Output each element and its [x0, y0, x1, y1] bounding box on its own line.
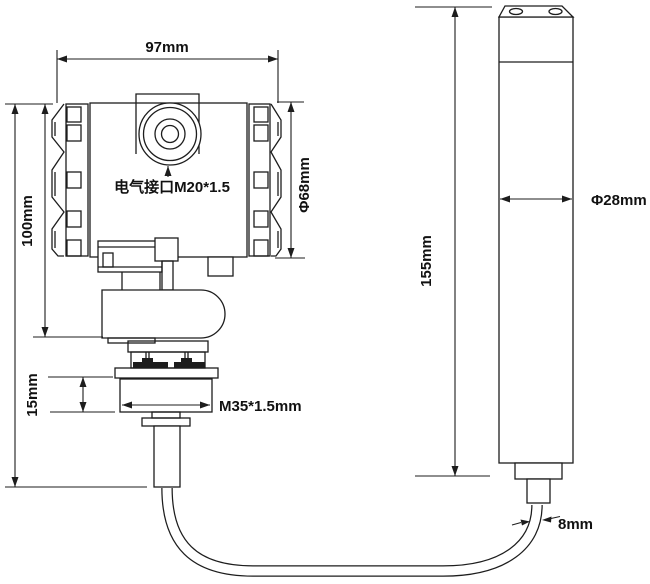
- process-connection: [98, 238, 233, 426]
- transmitter: [52, 94, 281, 426]
- probe: [499, 6, 573, 503]
- gasket-bar-right: [174, 362, 205, 368]
- thread-nut: [120, 379, 212, 412]
- dim-97mm-label: 97mm: [145, 39, 188, 56]
- electrical-port: [136, 94, 201, 165]
- right-cover-silhouette: [271, 104, 281, 256]
- side-step-block: [208, 257, 233, 276]
- dim-phi68-label: Φ68mm: [296, 157, 313, 213]
- dimension-drawing: 97mm 100mm 15mm Φ68mm 电气接口M20*1.5: [0, 0, 650, 584]
- port-outer-ring: [139, 103, 201, 165]
- cable-core: [167, 488, 537, 571]
- probe-cable-fitting: [527, 479, 550, 503]
- cap-post: [162, 261, 173, 290]
- mount-plate: [115, 368, 218, 378]
- left-cover-silhouette: [52, 104, 64, 256]
- probe-body: [499, 17, 573, 463]
- dim-phi28-label: Φ28mm: [591, 192, 647, 209]
- dim-155mm-label: 155mm: [418, 235, 435, 287]
- connection-cable: [167, 488, 537, 571]
- bolt-head-right: [181, 358, 192, 362]
- dim-100mm-label: 100mm: [19, 195, 36, 247]
- dimension-cable-8: 8mm: [512, 516, 593, 533]
- dim-15mm-label: 15mm: [24, 373, 41, 416]
- dimension-probe-length-155: 155mm: [415, 7, 492, 476]
- thread-m35-label: M35*1.5mm: [219, 398, 302, 415]
- right-cover-fins: [254, 107, 268, 256]
- cable-outline: [167, 488, 537, 571]
- cap-block: [155, 238, 178, 261]
- probe-bottom-collar: [515, 463, 562, 479]
- electrical-port-label: 电气接口M20*1.5: [114, 178, 230, 196]
- dim-8-arrow-right: [542, 517, 552, 523]
- process-stem: [154, 426, 180, 487]
- dim-8mm-label: 8mm: [558, 516, 593, 533]
- dim-15-extension-lines: [48, 377, 115, 412]
- gasket-bar-left: [133, 362, 168, 368]
- bolt-stems: [146, 352, 188, 358]
- left-cover-plate: [66, 104, 88, 256]
- neck-lines: [122, 272, 160, 290]
- stem-collar: [142, 418, 190, 426]
- nut-neck: [152, 412, 180, 418]
- dimension-nut-15: 15mm: [24, 373, 115, 416]
- bolt-head-left: [142, 358, 153, 362]
- dim-97-extension-lines: [57, 50, 278, 103]
- process-head: [102, 290, 225, 338]
- left-cover-fins: [67, 107, 81, 256]
- callout-electrical-port: 电气接口M20*1.5: [114, 166, 230, 196]
- right-cover-plate: [249, 104, 270, 256]
